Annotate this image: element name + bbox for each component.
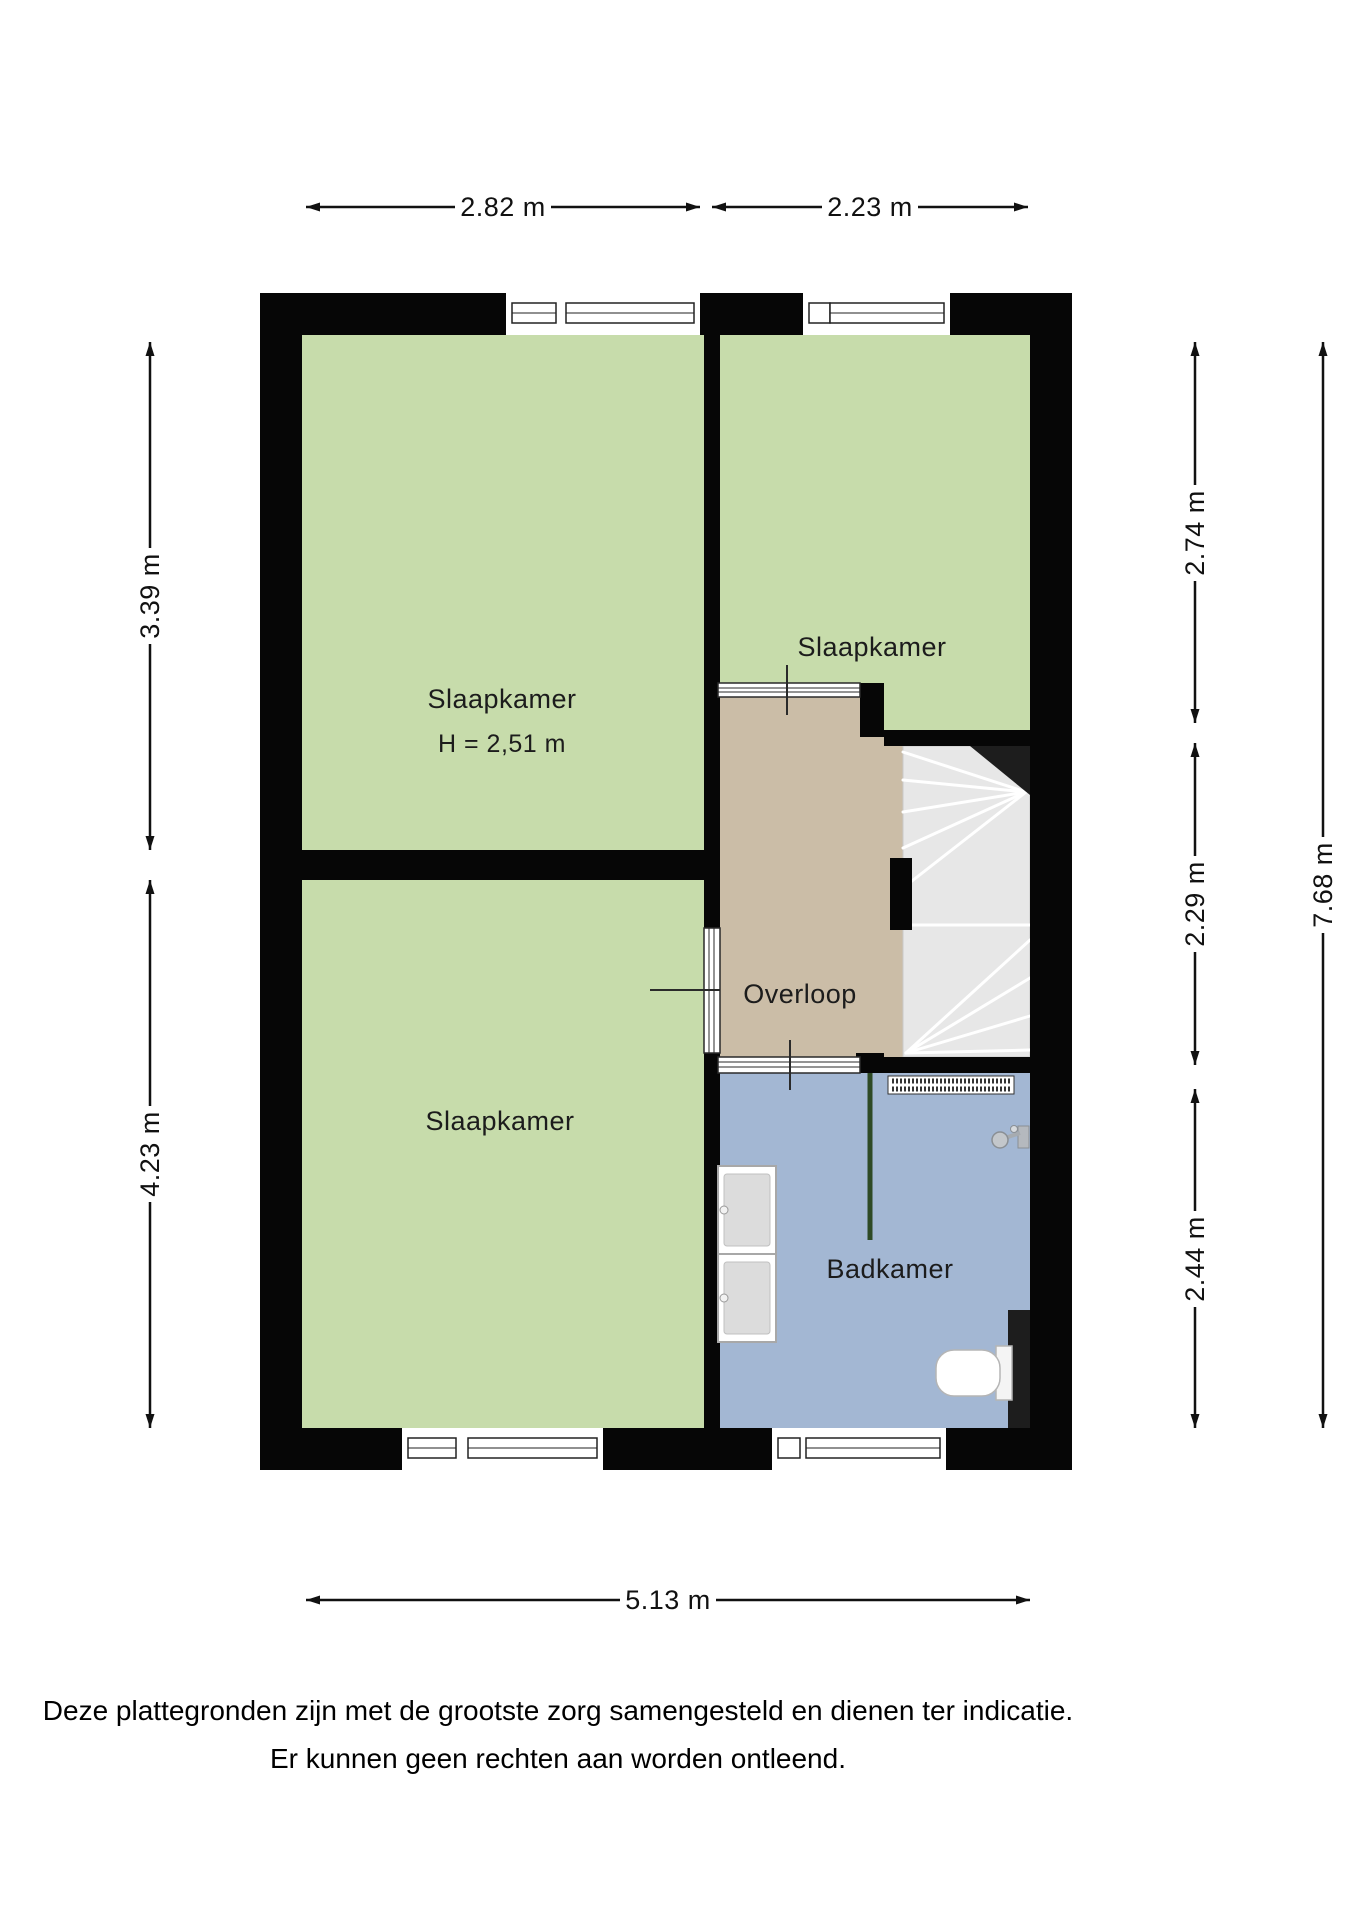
disclaimer-line-1: Deze plattegronden zijn met de grootste … bbox=[43, 1695, 1073, 1726]
wall-right bbox=[1030, 293, 1072, 1470]
wall-bottom bbox=[260, 1428, 1072, 1470]
svg-text:4.23 m: 4.23 m bbox=[135, 1111, 165, 1197]
floorplan-page: Slaapkamer H = 2,51 m Slaapkamer Slaapka… bbox=[0, 0, 1358, 1920]
disclaimer-line-2: Er kunnen geen rechten aan worden ontlee… bbox=[270, 1743, 846, 1774]
slaapkamer-top-right-label: Slaapkamer bbox=[797, 632, 946, 662]
window-top-bedroom1 bbox=[506, 293, 700, 335]
disclaimer: Deze plattegronden zijn met de grootste … bbox=[43, 1695, 1073, 1774]
floorplan-drawing: Slaapkamer H = 2,51 m Slaapkamer Slaapka… bbox=[0, 0, 1358, 1920]
window-bottom-bedroom3 bbox=[402, 1428, 603, 1470]
wall-stair-pocket bbox=[884, 730, 1030, 746]
dimension-top-left-width: 2.82 m bbox=[306, 189, 700, 225]
svg-text:2.82 m: 2.82 m bbox=[460, 192, 546, 222]
dimension-right-upper-height: 2.74 m bbox=[1178, 342, 1212, 723]
slaapkamer-top-left-floor bbox=[302, 335, 704, 850]
svg-text:7.68 m: 7.68 m bbox=[1308, 842, 1338, 928]
wall-stair-stub bbox=[890, 858, 912, 930]
svg-text:3.39 m: 3.39 m bbox=[135, 553, 165, 639]
stairwell-floor bbox=[903, 746, 1030, 1057]
wall-bedroom2-corner-block bbox=[860, 683, 884, 737]
svg-text:5.13 m: 5.13 m bbox=[625, 1585, 711, 1615]
overloop-label: Overloop bbox=[743, 979, 857, 1009]
dimension-top-right-width: 2.23 m bbox=[712, 189, 1028, 225]
dimension-right-lower-height: 2.44 m bbox=[1178, 1089, 1212, 1428]
window-bottom-badkamer bbox=[772, 1428, 946, 1470]
slaapkamer-top-left-height-label: H = 2,51 m bbox=[438, 730, 566, 758]
svg-text:2.29 m: 2.29 m bbox=[1180, 861, 1210, 947]
radiator bbox=[888, 1076, 1014, 1094]
slaapkamer-bottom-left-label: Slaapkamer bbox=[425, 1106, 574, 1136]
dimension-total-width: 5.13 m bbox=[306, 1582, 1030, 1618]
toilet bbox=[936, 1346, 1012, 1400]
dimension-right-middle-height: 2.29 m bbox=[1178, 743, 1212, 1065]
svg-text:2.74 m: 2.74 m bbox=[1180, 490, 1210, 576]
slaapkamer-top-left-label: Slaapkamer bbox=[427, 684, 576, 714]
wall-left-rooms-divider bbox=[260, 850, 720, 880]
dimension-left-upper-height: 3.39 m bbox=[133, 342, 167, 850]
dimension-total-height: 7.68 m bbox=[1306, 342, 1340, 1428]
washbasin-cabinet bbox=[718, 1166, 776, 1342]
svg-text:2.23 m: 2.23 m bbox=[827, 192, 913, 222]
slaapkamer-bottom-left-floor bbox=[302, 880, 704, 1428]
staircase bbox=[903, 746, 1030, 1057]
svg-text:2.44 m: 2.44 m bbox=[1180, 1216, 1210, 1302]
slaapkamer-top-right-floor bbox=[720, 335, 1030, 730]
dimension-left-lower-height: 4.23 m bbox=[133, 880, 167, 1428]
window-top-bedroom2 bbox=[803, 293, 950, 335]
badkamer-label: Badkamer bbox=[826, 1254, 953, 1284]
wall-left bbox=[260, 293, 302, 1470]
